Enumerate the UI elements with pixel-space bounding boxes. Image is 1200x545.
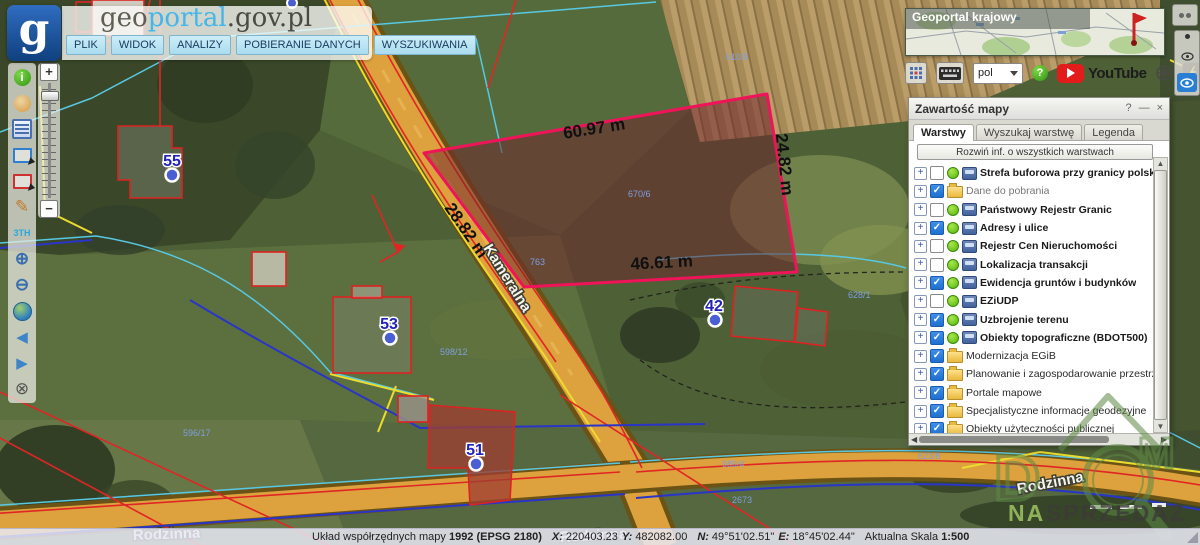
next-view-icon[interactable]: ▶ [12, 353, 32, 373]
expand-layer-icon[interactable]: + [914, 167, 927, 180]
panel-help-button[interactable]: ? [1125, 103, 1131, 114]
scroll-left-icon[interactable]: ◀ [911, 435, 917, 444]
eye-active-button[interactable] [1177, 73, 1197, 92]
expand-layer-icon[interactable]: + [914, 350, 927, 363]
address-label: 42 [705, 298, 723, 315]
layer-label[interactable]: Lokalizacja transakcji [980, 259, 1088, 271]
layer-checkbox[interactable] [930, 331, 944, 345]
layer-row: +Ewidencja gruntów i budynków [914, 274, 1153, 292]
zoom-out-icon[interactable]: ⊖ [12, 275, 32, 295]
expand-layer-icon[interactable]: + [914, 276, 927, 289]
layers-panel: Zawartość mapy ? — × Warstwy Wyszukaj wa… [908, 97, 1170, 446]
horizontal-scroll-thumb[interactable] [919, 436, 1109, 443]
layer-status-dot-icon [947, 295, 959, 307]
layer-row: +Obiekty topograficzne (BDOT500) [914, 329, 1153, 347]
parcel-number: 989/4 [722, 459, 745, 469]
layer-row: +Specjalistyczne informacje geodezyjne [914, 402, 1153, 420]
layer-checkbox[interactable] [930, 184, 944, 198]
youtube-play-icon [1057, 64, 1084, 83]
expand-layer-icon[interactable]: + [914, 313, 927, 326]
layer-label[interactable]: Państwowy Rejestr Granic [980, 204, 1112, 216]
parcel-number: 2673 [732, 495, 752, 505]
layer-row: +Dane do pobrania [914, 182, 1153, 200]
menu-item-wyszukiwania[interactable]: WYSZUKIWANIA [374, 35, 476, 55]
attribute-form-icon[interactable] [12, 119, 32, 139]
layer-checkbox[interactable] [930, 422, 944, 433]
parcel-number: 623/8 [918, 451, 941, 461]
layer-row: +EZiUDP [914, 292, 1153, 310]
menu-item-plik[interactable]: PLIK [66, 35, 106, 55]
tab-wyszukaj-warstwe[interactable]: Wyszukaj warstwę [976, 124, 1082, 140]
wms-service-icon [962, 331, 977, 344]
wms-service-icon [962, 203, 977, 216]
address-label: 55 [163, 153, 181, 170]
youtube-button[interactable]: YouTube [1057, 64, 1146, 83]
menu-item-widok[interactable]: WIDOK [111, 35, 164, 55]
expand-layer-icon[interactable]: + [914, 185, 927, 198]
eye-small-icon[interactable] [1181, 52, 1194, 61]
layer-label[interactable]: Obiekty użyteczności publicznej [966, 423, 1114, 433]
layer-status-dot-icon [947, 222, 959, 234]
address-marker [470, 458, 483, 471]
measure-icon[interactable]: 3TH [12, 223, 32, 243]
expand-all-row: Rozwiń inf. o wszystkich warstwach [909, 141, 1169, 161]
wms-service-icon [962, 222, 977, 235]
layer-status-dot-icon [947, 204, 959, 216]
e-value: 18°45'02.44" [792, 531, 854, 543]
parcel-number: 670/6 [628, 189, 651, 199]
resize-handle[interactable] [1187, 532, 1198, 543]
layer-label[interactable]: Obiekty topograficzne (BDOT500) [980, 332, 1147, 344]
address-label: 53 [380, 316, 398, 333]
panel-title: Zawartość mapy [915, 102, 1118, 116]
expand-layer-icon[interactable]: + [914, 222, 927, 235]
layer-checkbox[interactable] [930, 276, 944, 290]
geoportal-app: 60.97 m 24.82 m 28.82 m 46.61 m Kameraln… [0, 0, 1200, 545]
layer-label[interactable]: Rejestr Cen Nieruchomości [980, 240, 1117, 252]
overview-map[interactable]: Geoportal krajowy [905, 8, 1165, 56]
zoom-slider-minus-button[interactable]: − [40, 200, 58, 218]
youtube-label: YouTube [1088, 65, 1146, 82]
crs-label: Układ współrzędnych mapy [312, 531, 446, 543]
keyboard-icon[interactable] [936, 62, 964, 84]
layer-checkbox[interactable] [930, 367, 944, 381]
layer-label[interactable]: Uzbrojenie terenu [980, 314, 1069, 326]
layer-checkbox[interactable] [930, 239, 944, 253]
x-value: 220403.23 [566, 531, 618, 543]
horizontal-scrollbar[interactable]: ◀ ▶ [909, 433, 1169, 445]
language-value: pol [978, 67, 993, 79]
layer-checkbox[interactable] [930, 386, 944, 400]
top-controls: pol ? YouTube [905, 60, 1200, 86]
menu-bar: PLIKWIDOKANALIZYPOBIERANIE DANYCHWYSZUKI… [66, 35, 476, 55]
layer-row: +Strefa buforowa przy granicy polsko-bia… [914, 164, 1153, 182]
layer-checkbox[interactable] [930, 404, 944, 418]
layer-checkbox[interactable] [930, 313, 944, 327]
expand-all-button[interactable]: Rozwiń inf. o wszystkich warstwach [917, 144, 1153, 160]
parcel-number: 598/12 [440, 347, 468, 357]
layer-row: +Planowanie i zagospodarowanie przestrze… [914, 365, 1153, 383]
layer-row: +Portale mapowe [914, 384, 1153, 402]
parcel-number: 628/1 [848, 290, 871, 300]
address-label: 51 [466, 442, 484, 459]
panel-tabs: Warstwy Wyszukaj warstwę Legenda [909, 120, 1169, 141]
folder-icon [947, 388, 963, 400]
wheel-icon[interactable] [1155, 64, 1173, 82]
brand-part-geo: geo [100, 3, 148, 33]
layer-checkbox[interactable] [930, 258, 944, 272]
layer-row: +Adresy i ulice [914, 219, 1153, 237]
parcel-number: 610/5 [726, 52, 749, 62]
layer-label[interactable]: Ewidencja gruntów i budynków [980, 277, 1136, 289]
info-icon[interactable]: i [12, 67, 32, 87]
layer-checkbox[interactable] [930, 294, 944, 308]
menu-item-pobieranie-danych[interactable]: POBIERANIE DANYCH [236, 35, 369, 55]
layer-status-dot-icon [947, 277, 959, 289]
wms-service-icon [962, 258, 977, 271]
previous-view-icon[interactable]: ◀ [12, 327, 32, 347]
scroll-right-icon[interactable]: ▶ [1161, 435, 1167, 444]
scale-label: Aktualna Skala [865, 531, 938, 543]
expand-layer-icon[interactable]: + [914, 331, 927, 344]
tab-legenda[interactable]: Legenda [1084, 124, 1143, 140]
expand-layer-icon[interactable]: + [914, 423, 927, 433]
parcel-number: 763 [530, 257, 545, 267]
visibility-strip [1174, 30, 1200, 96]
folder-icon [947, 406, 963, 418]
brand-title: geoportal.gov.pl [100, 3, 312, 33]
status-bar: Układ współrzędnych mapy 1992 (EPSG 2180… [0, 528, 1200, 545]
menu-item-analizy[interactable]: ANALIZY [169, 35, 231, 55]
expand-layer-icon[interactable]: + [914, 203, 927, 216]
layer-row: +Modernizacja EGiB [914, 347, 1153, 365]
layer-row: +Rejestr Cen Nieruchomości [914, 237, 1153, 255]
folder-icon [947, 369, 963, 381]
expand-layer-icon[interactable]: + [914, 386, 927, 399]
layer-label[interactable]: Dane do pobrania [966, 185, 1049, 197]
zoom-in-icon[interactable]: ⊕ [12, 249, 32, 269]
x-label: X: [552, 531, 563, 543]
layer-status-dot-icon [947, 332, 959, 344]
logo-letter: g [19, 10, 50, 50]
layer-label[interactable]: Strefa buforowa przy granicy polsko-biał… [980, 167, 1153, 179]
minimap-title: Geoportal krajowy [906, 9, 1090, 29]
scale-value: 1:500 [941, 531, 969, 543]
geoportal-logo[interactable]: g [7, 5, 61, 61]
layer-label[interactable]: Modernizacja EGiB [966, 350, 1056, 362]
dot-icon[interactable] [1185, 34, 1190, 39]
vertical-scrollbar[interactable]: ▲ ▼ [1153, 157, 1168, 433]
wms-service-icon [962, 313, 977, 326]
folder-icon [947, 424, 963, 433]
select-rect-red-icon[interactable] [12, 171, 32, 191]
address-marker [709, 314, 722, 327]
layer-checkbox[interactable] [930, 221, 944, 235]
brand-part-portal: portal [148, 3, 227, 33]
layer-label[interactable]: Planowanie i zagospodarowanie przestrzen… [966, 368, 1153, 380]
address-marker [166, 169, 179, 182]
layer-checkbox[interactable] [930, 166, 944, 180]
layer-status-dot-icon [947, 240, 959, 252]
zoom-slider-plus-button[interactable]: + [40, 63, 58, 81]
select-rect-blue-icon[interactable] [12, 145, 32, 165]
scroll-up-icon[interactable]: ▲ [1157, 158, 1165, 169]
folder-icon [947, 186, 963, 198]
panel-minimize-button[interactable]: — [1139, 103, 1150, 114]
vertical-scroll-thumb[interactable] [1154, 170, 1167, 420]
wms-service-icon [962, 276, 977, 289]
left-toolbar: i ✎ 3TH ⊕ ⊖ ◀ ▶ ⊗ [8, 63, 36, 403]
parcel-number: 596/17 [183, 428, 211, 438]
layer-label[interactable]: Specjalistyczne informacje geodezyjne [966, 405, 1146, 417]
zoom-slider: + − [38, 63, 60, 218]
chevron-down-icon [1010, 71, 1018, 76]
expand-layer-icon[interactable]: + [914, 240, 927, 253]
layer-status-dot-icon [947, 167, 959, 179]
y-label: Y: [622, 531, 632, 543]
layer-row: +Lokalizacja transakcji [914, 255, 1153, 273]
n-value: 49°51'02.51" [712, 531, 774, 543]
layer-status-dot-icon [947, 314, 959, 326]
layer-status-dot-icon [947, 259, 959, 271]
layer-checkbox[interactable] [930, 349, 944, 363]
expand-layer-icon[interactable]: + [914, 405, 927, 418]
folder-icon [947, 351, 963, 363]
address-marker [384, 332, 397, 345]
layer-row: +Obiekty użyteczności publicznej [914, 420, 1153, 433]
history-icon[interactable] [12, 93, 32, 113]
panel-titlebar: Zawartość mapy ? — × [909, 98, 1169, 120]
language-select[interactable]: pol [973, 63, 1023, 84]
expand-layer-icon[interactable]: + [914, 258, 927, 271]
zoom-slider-track[interactable] [42, 83, 56, 198]
clear-selection-icon[interactable]: ⊗ [12, 379, 32, 399]
e-label: E: [778, 531, 789, 543]
scroll-down-icon[interactable]: ▼ [1157, 421, 1165, 432]
layer-label[interactable]: EZiUDP [980, 295, 1019, 307]
expand-layer-icon[interactable]: + [914, 295, 927, 308]
zoom-slider-handle[interactable] [41, 91, 59, 101]
layer-label[interactable]: Portale mapowe [966, 387, 1042, 399]
wms-service-icon [962, 167, 977, 180]
globe-extent-icon[interactable] [12, 301, 32, 321]
brand-part-govpl: .gov.pl [227, 3, 312, 33]
draw-pencil-icon[interactable]: ✎ [12, 197, 32, 217]
wms-service-icon [962, 295, 977, 308]
measurement-bottom: 46.61 m [630, 251, 693, 273]
grid-icon[interactable] [905, 62, 927, 84]
tab-warstwy[interactable]: Warstwy [913, 124, 974, 141]
layer-checkbox[interactable] [930, 203, 944, 217]
panel-close-button[interactable]: × [1157, 103, 1163, 114]
panel-collapse-button[interactable] [1172, 4, 1198, 26]
help-button[interactable]: ? [1032, 65, 1048, 81]
layer-label[interactable]: Adresy i ulice [980, 222, 1048, 234]
n-label: N: [697, 531, 709, 543]
layer-row: +Państwowy Rejestr Granic [914, 201, 1153, 219]
y-value: 482082.00 [635, 531, 687, 543]
expand-layer-icon[interactable]: + [914, 368, 927, 381]
crs-value: 1992 (EPSG 2180) [449, 531, 542, 543]
layer-row: +Uzbrojenie terenu [914, 310, 1153, 328]
layer-list: +Strefa buforowa przy granicy polsko-bia… [909, 161, 1169, 433]
wms-service-icon [962, 240, 977, 253]
